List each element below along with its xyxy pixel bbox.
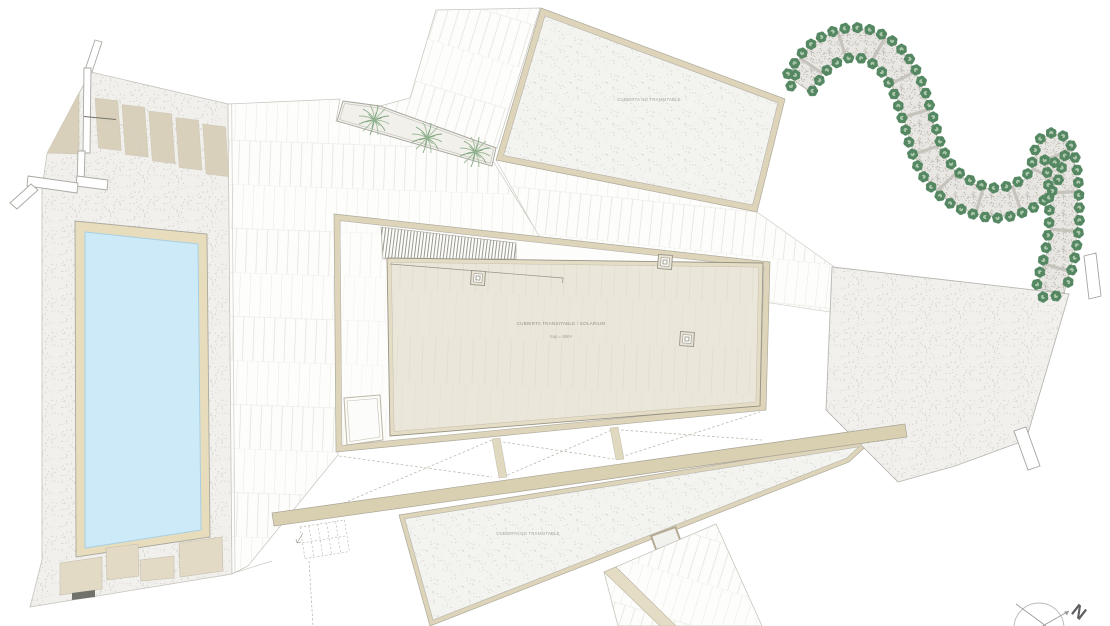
svg-text:CUBIERTA NO TRANSITABLE: CUBIERTA NO TRANSITABLE — [617, 97, 681, 102]
svg-text:CUBIERTA TRANSITABLE / SOLARIU: CUBIERTA TRANSITABLE / SOLARIUM — [517, 321, 606, 326]
svg-text:CUBIERTA NO TRANSITABLE: CUBIERTA NO TRANSITABLE — [496, 531, 560, 536]
svg-text:Sup = 80m²: Sup = 80m² — [550, 334, 573, 339]
